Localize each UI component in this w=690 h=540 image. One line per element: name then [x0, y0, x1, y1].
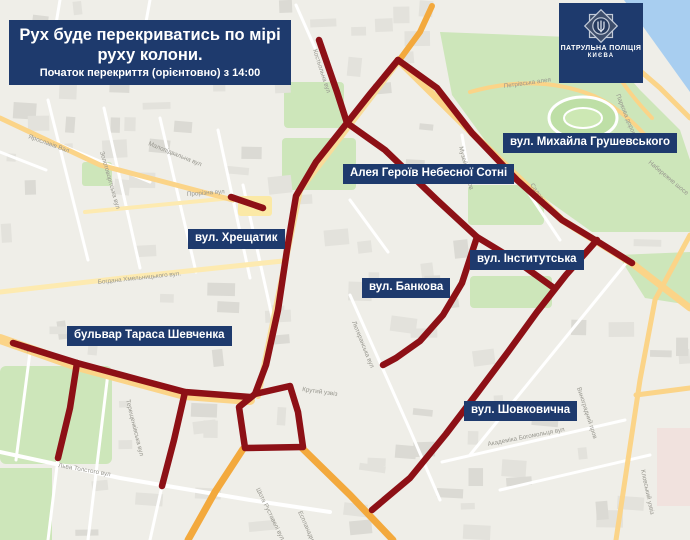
street-label-box: вул. Інститутська	[470, 250, 584, 270]
street-label-box: вул. Банкова	[362, 278, 450, 298]
police-title: ПАТРУЛЬНА ПОЛІЦІЯ	[559, 45, 643, 52]
street-label-box: вул. Хрещатик	[188, 229, 285, 249]
police-badge-panel: ПАТРУЛЬНА ПОЛІЦІЯ КИЄВА	[559, 3, 643, 83]
street-label-box: Алея Героїв Небесної Сотні	[343, 164, 514, 184]
banner-title: Рух буде перекриватись по міріруху колон…	[11, 25, 289, 65]
banner-title-line1: Рух буде перекриватись по мірі	[19, 26, 280, 44]
street-label-box: бульвар Тараса Шевченка	[67, 326, 232, 346]
police-star-icon	[583, 8, 619, 44]
banner-title-line2: руху колони.	[97, 46, 202, 64]
landmark-building	[657, 428, 690, 506]
banner-subtitle: Початок перекриття (орієнтовно) з 14:00	[11, 67, 289, 79]
police-city: КИЄВА	[559, 53, 643, 59]
street-label-box: вул. Шовковична	[464, 401, 577, 421]
map-graphic: Ярославів ВалЗолотоворітська вулМалопідв…	[0, 0, 690, 540]
street-label-box: вул. Михайла Грушевського	[503, 133, 677, 153]
closure-banner: Рух буде перекриватись по міріруху колон…	[9, 20, 291, 85]
